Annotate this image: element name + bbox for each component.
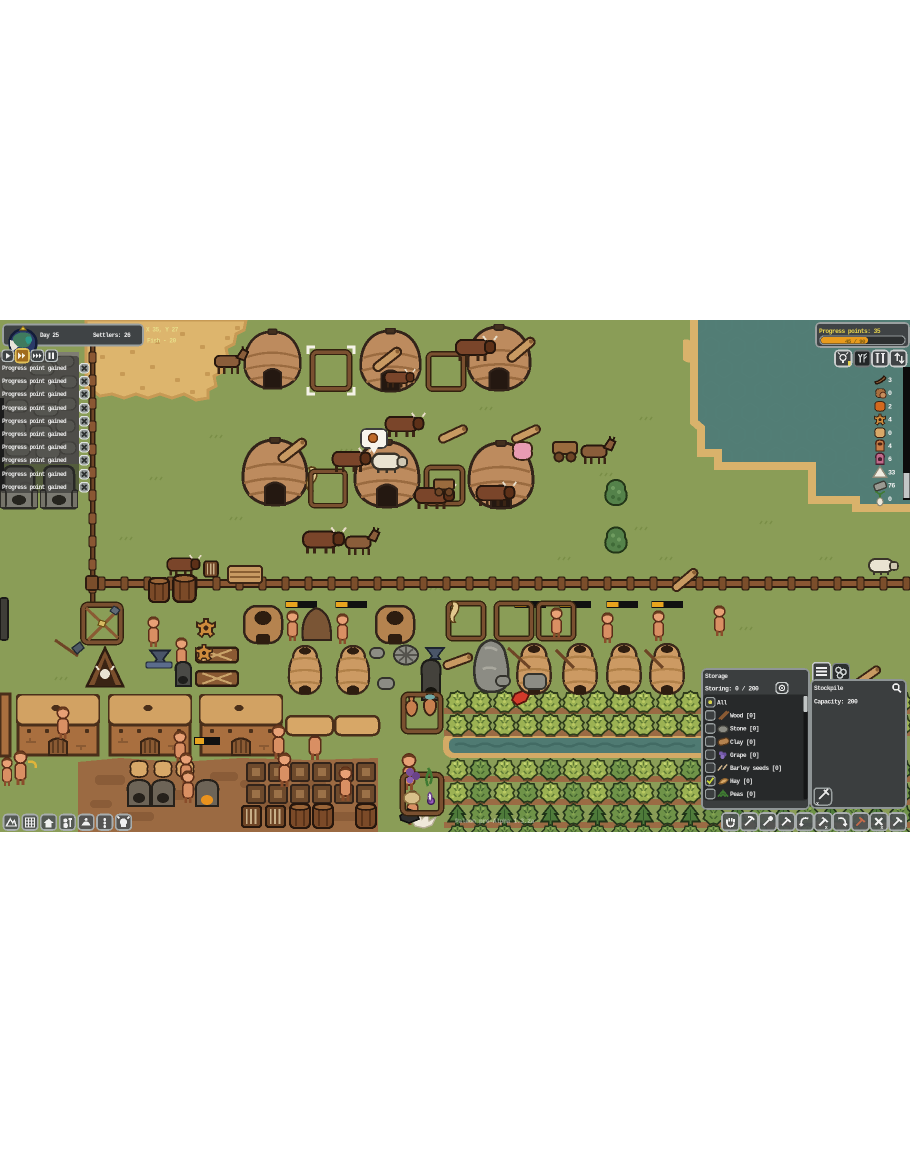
svg-text:Progress point gained: Progress point gained xyxy=(2,444,67,451)
svg-text:Progress point gained: Progress point gained xyxy=(2,484,67,491)
svg-text:33: 33 xyxy=(888,469,895,476)
svg-text:Progress point gained: Progress point gained xyxy=(2,365,67,372)
svg-text:Progress point gained: Progress point gained xyxy=(2,378,67,385)
svg-text:x: x xyxy=(816,801,819,807)
svg-text:x: x xyxy=(880,825,883,831)
svg-text:Storage: Storage xyxy=(705,673,728,680)
svg-text:45 / 90: 45 / 90 xyxy=(845,338,866,345)
svg-text:Wood [0]: Wood [0] xyxy=(730,713,756,720)
svg-text:Barley seeds [0]: Barley seeds [0] xyxy=(730,765,781,772)
svg-text:Settlers: 26: Settlers: 26 xyxy=(93,332,131,339)
svg-text:Progress point gained: Progress point gained xyxy=(2,431,67,438)
svg-text:Hay [0]: Hay [0] xyxy=(730,778,753,785)
svg-text:Peas [0]: Peas [0] xyxy=(730,791,756,798)
svg-text:76: 76 xyxy=(888,483,895,490)
svg-text:X 35, Y 27: X 35, Y 27 xyxy=(146,327,179,334)
svg-text:Progress point gained: Progress point gained xyxy=(2,471,67,478)
svg-text:Progress points: 35: Progress points: 35 xyxy=(819,328,881,335)
svg-text:Fish - 20: Fish - 20 xyxy=(147,338,177,345)
svg-text:Grape [0]: Grape [0] xyxy=(730,752,759,759)
svg-text:Clay [0]: Clay [0] xyxy=(730,739,756,746)
svg-text:Progress point gained: Progress point gained xyxy=(2,391,67,398)
svg-text:Progress point gained: Progress point gained xyxy=(2,418,67,425)
svg-text:Stone [0]: Stone [0] xyxy=(730,726,759,733)
svg-text:Storing: 0 / 200: Storing: 0 / 200 xyxy=(705,686,759,693)
svg-text:Capacity: 200: Capacity: 200 xyxy=(814,699,858,706)
svg-text:Paleon pre-Alpha 1.3.2a: Paleon pre-Alpha 1.3.2a xyxy=(455,818,535,825)
svg-text:Progress point gained: Progress point gained xyxy=(2,457,67,464)
svg-text:Stockpile: Stockpile xyxy=(814,685,844,692)
svg-text:Progress point gained: Progress point gained xyxy=(2,405,67,412)
svg-text:Day 25: Day 25 xyxy=(40,332,60,339)
svg-text:x: x xyxy=(825,825,828,831)
svg-text:All: All xyxy=(717,700,727,707)
